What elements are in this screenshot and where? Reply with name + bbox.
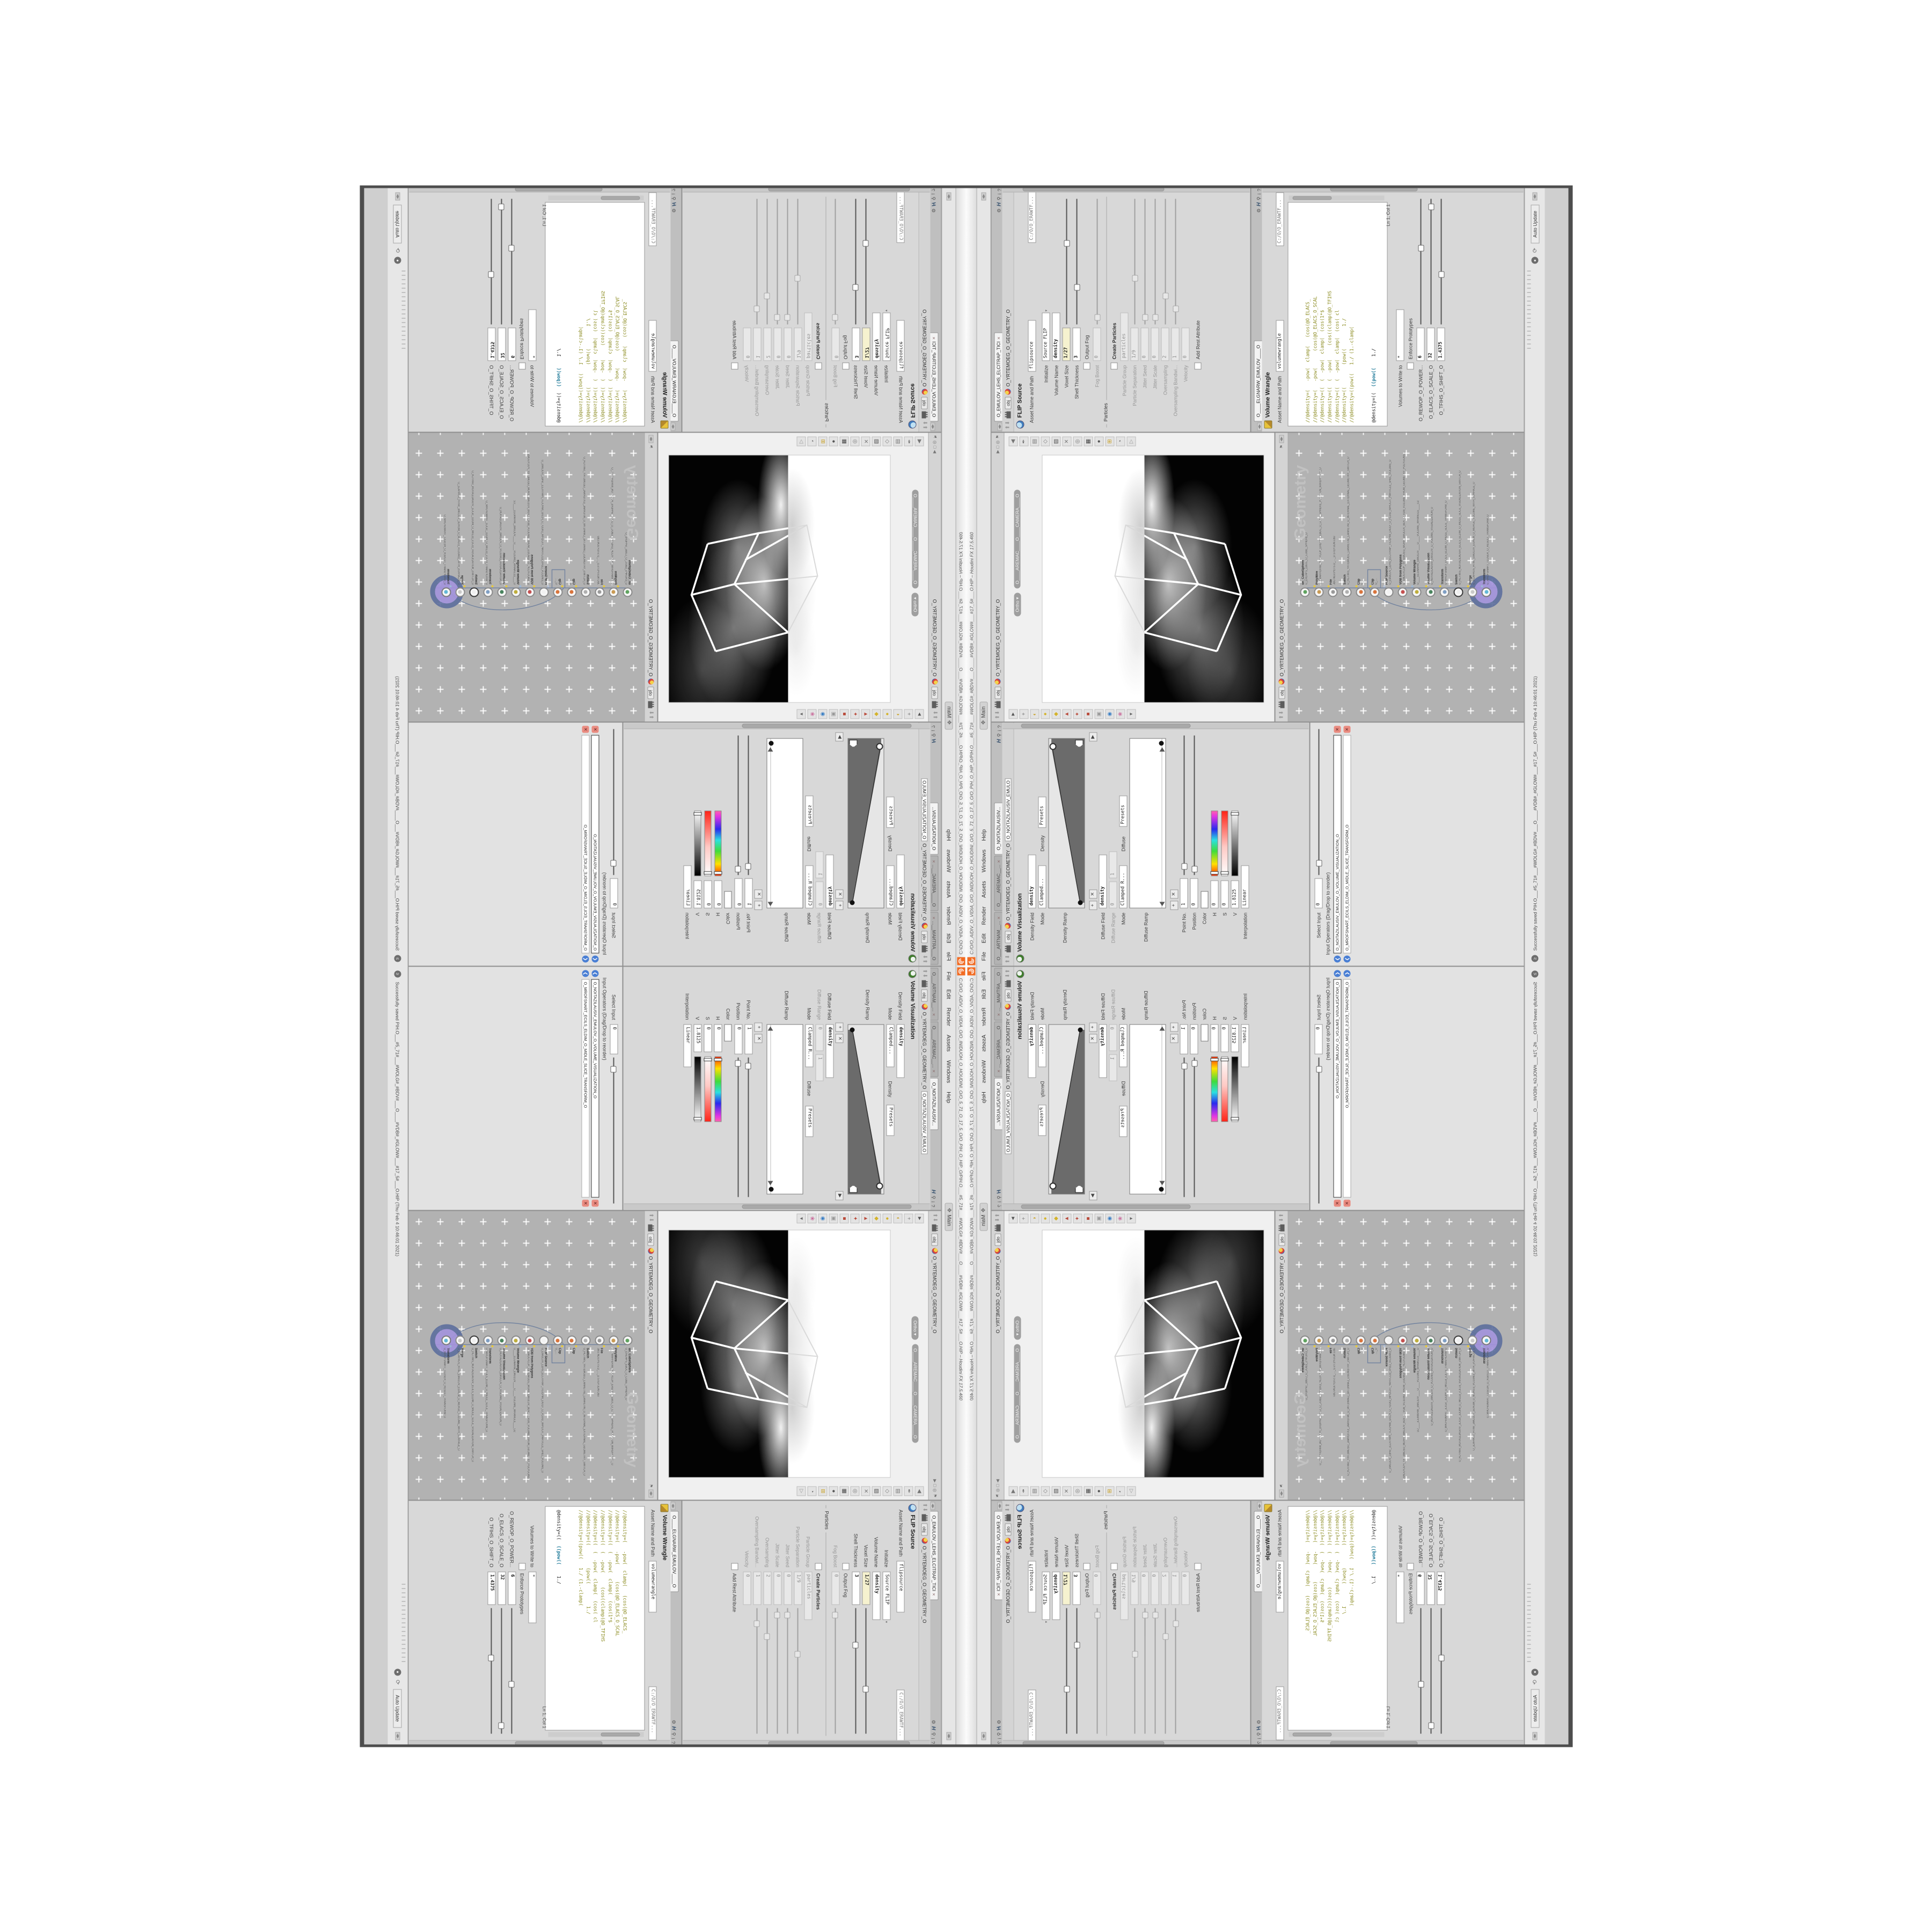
toolbar-icon[interactable]: + (904, 709, 913, 719)
particle-separation-field[interactable]: 1/9 (1130, 1571, 1138, 1605)
node-body-icon[interactable] (1481, 1335, 1491, 1345)
node-name-field[interactable]: O_NOITAZILAUSIV_EMULO (921, 1091, 928, 1154)
tab-close-icon[interactable]: ✕ (997, 1592, 1001, 1596)
slider-handle[interactable] (852, 1642, 858, 1648)
menu-render[interactable]: Render (946, 1007, 952, 1026)
particles-section-label[interactable]: Particles (824, 400, 829, 424)
jitter-scale-field[interactable]: 0 (773, 1571, 781, 1605)
slider-handle[interactable] (693, 1117, 701, 1120)
toolbar-icon[interactable]: ◆ (1051, 1213, 1060, 1223)
ramp-marker-icon[interactable] (767, 1181, 773, 1185)
nav-arrows-icon[interactable]: ⬆⬇ (1005, 954, 1011, 963)
network-node[interactable]: Clip O_… (1370, 1335, 1379, 1482)
network-node[interactable]: Clip O_… (567, 450, 576, 597)
particle-separation-slider[interactable] (794, 1608, 801, 1733)
node-body-icon[interactable] (567, 587, 576, 597)
node-name-field[interactable]: O_NOITAZILAUSIV_EMULO (1005, 1091, 1011, 1154)
vex-code-editor[interactable]: //@density=( -pow( clamp( (cos(@O_ELACS_… (545, 1506, 645, 1730)
node-body-icon[interactable] (539, 587, 548, 597)
target-icon[interactable]: ◎ (932, 1488, 937, 1492)
info-icon[interactable]: i (997, 193, 1002, 194)
slider-handle[interactable] (1142, 314, 1148, 320)
remove-input-icon[interactable]: ✕ (1334, 1199, 1341, 1206)
tab-volume-wrangle[interactable]: O____ELGNARW_EMULOV____O (670, 340, 678, 421)
node-body-icon[interactable] (497, 1335, 507, 1345)
toolbar-icon[interactable]: ◎ (1073, 436, 1082, 446)
remove-input-icon[interactable]: ✕ (582, 1199, 589, 1206)
node-body-icon[interactable] (1439, 1335, 1449, 1345)
input-operator-row[interactable]: ❮ O_MROFSNART_ECILS_ELDIM_O_MIDLE_SLICE_… (1342, 967, 1351, 1210)
remove-input-icon[interactable]: ✕ (592, 1199, 599, 1206)
houdini-h-icon[interactable]: H (670, 1726, 676, 1730)
node-name-field[interactable]: O_NOITAZILAUSIV_EMULO (921, 778, 928, 841)
message-log-icon[interactable]: ≥ (394, 970, 401, 977)
node-flag-icon[interactable] (617, 1345, 619, 1347)
slider-handle[interactable] (1210, 871, 1218, 874)
code-scrollbar[interactable] (1289, 1732, 1384, 1737)
toolbar-icon[interactable]: ▤ (1030, 1486, 1039, 1496)
volume-name-field[interactable]: density (1052, 1571, 1060, 1620)
tab-visualization[interactable]: O_NOITAZILAUSIV... (994, 1078, 1002, 1130)
node-body-icon[interactable] (1314, 1335, 1323, 1345)
jitter-seed-slider[interactable] (1141, 199, 1148, 324)
jitter-seed-slider[interactable] (784, 199, 791, 324)
ramp-delete-point-button[interactable]: ✕ (1170, 889, 1178, 898)
network-node[interactable]: Switch O_HCTIWS_NOITAZILAUSIV_ECILS_ELDI… (1453, 450, 1463, 597)
slider-handle[interactable] (1418, 245, 1424, 251)
network-node[interactable]: Transform O_MROFSNART_TLUSER_O_RESULT_TR… (1481, 1335, 1491, 1482)
ramp-add-point-button[interactable]: + (1170, 901, 1178, 910)
toolbar-icon[interactable]: ● (1094, 1486, 1103, 1496)
pane-split-arrows-icon[interactable]: ◀▶ (648, 435, 653, 443)
nav-arrows-icon[interactable]: ⬆⬇ (648, 710, 654, 719)
help-icon[interactable]: ? (1256, 188, 1262, 191)
network-node[interactable]: File JBO.ND3.PETS.D_…_D.STEP.3DN.OBJ (595, 450, 604, 597)
network-node[interactable]: Clip O_… (1370, 450, 1379, 597)
houdini-h-icon[interactable]: H (930, 202, 936, 206)
network-node[interactable]: Switch O_HCTIWS_YRTEMOEG_LANRETXE_LANRET… (581, 1335, 590, 1482)
node-flag-icon[interactable] (1383, 585, 1385, 587)
point-no-value[interactable]: 1 (744, 878, 752, 908)
asset-name-field[interactable]: volumewrangle (649, 1561, 657, 1612)
jump-to-node-icon[interactable]: ❮ (582, 970, 589, 977)
shell-thickness-slider[interactable] (1073, 199, 1080, 324)
slider-handle[interactable] (1181, 1063, 1187, 1069)
network-node[interactable]: Transform O_MROFSNART_ECILS_ELDIM_O_MIDL… (1439, 450, 1449, 597)
particle-separation-field[interactable]: 1/9 (794, 327, 802, 361)
ramp-add-point-button[interactable]: + (836, 901, 844, 910)
help-icon[interactable]: ? (931, 725, 936, 728)
ramp-point-handle[interactable] (1078, 1027, 1082, 1032)
menu-help[interactable]: Help (946, 1092, 952, 1103)
node-flag-icon[interactable] (1369, 1345, 1371, 1347)
toolbar-icon[interactable]: ▷ (796, 1486, 806, 1496)
pin-icon[interactable]: ⚑ (1279, 444, 1284, 448)
node-body-icon[interactable] (1411, 587, 1421, 597)
view-mode-pill[interactable]: Ortho ▾ (1014, 592, 1021, 616)
ramp-add-point-button[interactable]: + (836, 1022, 844, 1031)
slider-handle[interactable] (1074, 284, 1080, 290)
add-rest-checkbox[interactable] (1194, 1563, 1201, 1570)
network-path[interactable]: O_YRTEMOEG_O_GEOMETRY_O (648, 1256, 654, 1333)
volumes-to-write-field[interactable]: * (528, 1571, 536, 1623)
scene-path[interactable]: O_YRTEMOEG_O_GEOMETRY_O (932, 599, 938, 676)
view-mode-pill[interactable]: Ortho ▾ (911, 1316, 918, 1340)
presets2-dropdown[interactable]: Presets (805, 1106, 813, 1137)
message-log-icon[interactable]: ≥ (1531, 955, 1538, 962)
diffuse-mode-dropdown[interactable]: Clamped R... (805, 865, 813, 908)
slider-handle[interactable] (832, 314, 838, 320)
pane-split-arrows-icon[interactable]: ◀▶ (946, 192, 951, 200)
cook-mode-icon[interactable]: ● (394, 1668, 401, 1675)
node-flag-icon[interactable] (505, 1345, 507, 1347)
camera-pill[interactable]: O____AREMAC____O____CAMERA____O (1014, 1344, 1020, 1443)
network-node[interactable]: VDB from Polygons O_SNOGYLOP_YRTEMOEG_MO… (1397, 450, 1407, 597)
slider-handle[interactable] (498, 203, 504, 210)
ramp-marker-icon[interactable] (1159, 1026, 1165, 1030)
network-node[interactable]: Clip O_… (1356, 1335, 1365, 1482)
timeline-ticks[interactable] (401, 268, 405, 349)
toolbar-icon[interactable]: ◀ (914, 436, 924, 446)
node-flag-icon[interactable] (1355, 585, 1357, 587)
toolbar-icon[interactable]: ▣ (1094, 1213, 1103, 1223)
network-node[interactable]: Merge O_ECAFRUS_HTIW_EMULOV_EGREM_O_MERG… (455, 450, 465, 597)
toolbar-icon[interactable]: ▷ (1126, 436, 1136, 446)
slider-handle[interactable] (1074, 1642, 1080, 1648)
input-operator-row[interactable]: ❮ O_NOITAZILAUSIV_EMULOV_O_VOLUME_VISUAL… (1332, 967, 1342, 1210)
search-icon[interactable]: ⚲ (930, 733, 936, 737)
ramp-point-handle[interactable] (876, 743, 883, 750)
node-body-icon[interactable] (1439, 587, 1449, 597)
velocity-field[interactable]: 0 (743, 1571, 751, 1605)
volumes-to-write-field[interactable]: * (1396, 309, 1404, 361)
toolbar-icon[interactable]: ⊞ (818, 436, 827, 446)
nav-arrows-icon[interactable]: ⬆⬇ (648, 1213, 654, 1222)
particle-group-field[interactable]: particles (804, 312, 812, 361)
node-path[interactable]: O_YRTEMOEG_O_GEOMETRY_O (922, 1012, 927, 1089)
node-flag-icon[interactable] (1327, 585, 1329, 587)
power-param-field[interactable]: 6 (508, 327, 516, 361)
asset-path-field[interactable]: C:/O/O_ERAWTF... (897, 189, 905, 243)
power-param-slider[interactable] (1417, 1608, 1424, 1733)
power-param-field[interactable]: 6 (1416, 327, 1424, 361)
diffuse-ramp-widget[interactable] (1129, 1024, 1166, 1194)
tab-camera[interactable]: O____AREMAC__...✕ (994, 855, 1002, 911)
camera-pill[interactable]: O____AREMAC____O____CAMERA____O (1014, 489, 1020, 588)
value-value[interactable]: 1.8125 (693, 1024, 701, 1052)
input-operator-2[interactable]: O_MROFSNART_ECILS_ELDIM_O_MIDLE_SLICE_TR… (582, 979, 590, 1197)
network-node[interactable]: Switch O_HCTIWS_YRTEMOEG_LANRETXE_LANRET… (581, 450, 590, 597)
slider-handle[interactable] (832, 1612, 838, 1618)
output-fog-checkbox[interactable] (1083, 362, 1090, 369)
remove-input-icon[interactable]: ✕ (1343, 1199, 1350, 1206)
node-path[interactable]: O_YRTEMOEG_O_GEOMETRY_O (1005, 309, 1011, 386)
pane-split-arrows-icon[interactable]: ◀▶ (946, 1732, 951, 1740)
toolbar-icon[interactable]: ❀ (1116, 709, 1125, 719)
asset-name-field[interactable]: flipsource (1028, 1561, 1036, 1612)
ramp-expand-button[interactable]: ▶ (1089, 732, 1097, 741)
tab-scroll-arrows-icon[interactable]: ◀▶ (670, 1502, 675, 1510)
node-body-icon[interactable] (1314, 587, 1323, 597)
timeline-ticks[interactable] (1527, 268, 1531, 349)
toolbar-icon[interactable]: ⊞ (1105, 1486, 1114, 1496)
scrollbar[interactable] (624, 723, 930, 729)
diffuse-field-value[interactable]: density (1099, 1024, 1107, 1078)
node-flag-icon[interactable] (1341, 585, 1343, 587)
houdini-h-icon[interactable]: H (996, 202, 1002, 206)
search-icon[interactable]: ⚲ (1256, 1732, 1262, 1736)
node-body-icon[interactable] (623, 1335, 632, 1345)
network-node[interactable]: Transform O_MROFSNART_ECILS_ELDIM_O_MIDL… (483, 450, 493, 597)
input-operator-2[interactable]: O_MROFSNART_ECILS_ELDIM_O_MIDLE_SLICE_TR… (1343, 735, 1351, 953)
value-value[interactable]: 1.8125 (693, 880, 701, 908)
saturation-slider[interactable] (1221, 810, 1228, 876)
interpolation-dropdown[interactable]: Linear (1241, 865, 1249, 908)
update-mode-arrows-icon[interactable]: ◀▶ (395, 192, 400, 200)
node-flag-icon[interactable] (1397, 585, 1399, 587)
slider-handle[interactable] (508, 1681, 514, 1687)
menu-edit[interactable]: Edit (946, 989, 952, 999)
houdini-h-icon[interactable]: H (996, 1189, 1002, 1193)
slider-handle[interactable] (610, 1066, 616, 1072)
toolbar-icon[interactable]: ◔ (807, 1486, 816, 1496)
toolbar-icon[interactable]: ▣ (829, 709, 838, 719)
window-titlebar[interactable]: C:/O/O_AIDIV_O_VIDIA_O/O_INIDUOH_O_HOUDI… (955, 966, 966, 1744)
tab-scroll-arrows-icon[interactable]: ◀▶ (997, 422, 1002, 430)
pin-icon[interactable]: ⚑ (648, 444, 653, 448)
toolbar-icon[interactable]: ❀ (807, 1213, 816, 1223)
toolbar-icon[interactable]: ✒ (1019, 436, 1028, 446)
node-body-icon[interactable] (525, 587, 535, 597)
network-node[interactable]: un_CubeSphere O_EREHPS_EBUC_O_CUBE_SPHER… (623, 450, 632, 597)
asset-path-field[interactable]: C:/O/O_ERAWTF... (897, 1689, 905, 1743)
node-flag-icon[interactable] (589, 1345, 591, 1347)
hue-slider[interactable] (714, 1056, 721, 1122)
ramp-add-point-button[interactable]: + (1089, 1022, 1097, 1031)
toolbar-icon[interactable]: ✦ (850, 709, 859, 719)
context-chip[interactable]: obj (932, 686, 938, 699)
play-button-icon[interactable]: ▶ (995, 450, 1000, 453)
value-value[interactable]: 1.8125 (1231, 1024, 1239, 1052)
camera-pill[interactable]: O____AREMAC____O____CAMERA____O (912, 489, 918, 588)
node-flag-icon[interactable] (1481, 1345, 1483, 1347)
vex-code-editor[interactable]: //@density=( -pow( clamp( (cos(@O_ELACS_… (1287, 202, 1387, 426)
diffuse-range-min[interactable]: 0 (1109, 881, 1117, 908)
diffuse-mode-dropdown[interactable]: Clamped R... (1119, 865, 1127, 908)
scrollbar-thumb[interactable] (768, 1741, 910, 1745)
network-node[interactable]: Switch O_HCTIWS_NOITAZILAUSIV_ECILS_ELDI… (469, 1335, 479, 1482)
diffuse-field-value[interactable]: density (825, 1024, 833, 1078)
network-node[interactable]: PolyWire O_EMARFERIW_NOGYLOP_EREHPS_EBUC… (1314, 1335, 1323, 1482)
toolbar-icon[interactable]: ◆ (1051, 709, 1060, 719)
toolbar-icon[interactable]: ► (914, 709, 924, 719)
hue-value[interactable]: 0 (1210, 880, 1218, 908)
fog-boost-slider[interactable] (832, 1608, 839, 1733)
desktop-selector[interactable]: ✥ Main (979, 1203, 987, 1231)
help-icon[interactable]: ? (997, 725, 1002, 728)
fog-boost-slider[interactable] (1093, 1608, 1100, 1733)
shift-param-slider[interactable] (488, 1608, 495, 1733)
nav-arrows-icon[interactable]: ⬆⬇ (1005, 969, 1011, 978)
diffuse-range-max[interactable]: 1 (815, 851, 823, 878)
diffuse-mode-dropdown[interactable]: Clamped R... (805, 1024, 813, 1067)
vex-code-editor[interactable]: //@density=( -pow( clamp( (cos(@O_ELACS_… (1287, 1506, 1387, 1730)
point-no-value[interactable]: 1 (1180, 1024, 1188, 1054)
cook-mode-icon[interactable]: ● (394, 257, 401, 264)
slider-handle[interactable] (714, 871, 722, 874)
network-path[interactable]: O_YRTEMOEG_O_GEOMETRY_O (1279, 1256, 1284, 1333)
render-region[interactable] (1042, 455, 1264, 702)
menu-file[interactable]: File (946, 971, 952, 980)
tab-camera[interactable]: O____AREMAC__...✕ (994, 1021, 1002, 1077)
network-node[interactable]: Transform O_MROFSNART_TLUSER_O_RESULT_TR… (441, 450, 451, 597)
node-body-icon[interactable] (441, 587, 451, 597)
node-flag-icon[interactable] (463, 1345, 465, 1347)
slider-handle[interactable] (1173, 1620, 1179, 1627)
nav-arrows-icon[interactable]: ⬆⬇ (921, 420, 927, 429)
slider-handle[interactable] (488, 271, 494, 277)
toolbar-icon[interactable]: ❀ (807, 709, 816, 719)
node-body-icon[interactable] (609, 587, 618, 597)
tab-scroll-arrows-icon[interactable]: ◀▶ (1257, 1502, 1262, 1510)
input-operator-row[interactable]: ❮ O_NOITAZILAUSIV_EMULOV_O_VOLUME_VISUAL… (590, 967, 600, 1210)
diffuse-field-value[interactable]: density (825, 854, 833, 908)
ramp-point-handle[interactable] (1159, 741, 1163, 745)
shift-param-field[interactable]: 1.4375 (1437, 1571, 1445, 1605)
node-body-icon[interactable] (553, 1335, 562, 1345)
tab-volume-wrangle[interactable]: O____ELGNARW_EMULOV____O (1254, 340, 1262, 421)
tab-close-icon[interactable]: ✕ (997, 1013, 1001, 1016)
volume-name-field[interactable]: density (872, 312, 880, 361)
scrollbar-thumb[interactable] (742, 723, 911, 728)
menu-edit[interactable]: Edit (946, 933, 952, 943)
ramp-delete-point-button[interactable]: ✕ (755, 889, 763, 898)
node-flag-icon[interactable] (1439, 585, 1441, 587)
toolbar-icon[interactable]: ◉ (1105, 709, 1114, 719)
toolbar-icon[interactable]: ► (914, 1213, 924, 1223)
menu-windows[interactable]: Windows (946, 849, 952, 872)
node-body-icon[interactable] (1467, 1335, 1477, 1345)
help-icon[interactable]: ? (997, 1204, 1002, 1207)
toolbar-icon[interactable]: ◀ (914, 1486, 924, 1496)
oversampling-slider[interactable] (1161, 199, 1168, 324)
toolbar-icon[interactable]: ◀ (1008, 436, 1018, 446)
desktop-selector[interactable]: ✥ Main (945, 1203, 953, 1231)
density-ramp-widget[interactable] (847, 1024, 884, 1194)
slider-handle[interactable] (1064, 240, 1070, 246)
context-chip[interactable]: obj (921, 397, 928, 409)
recook-icon[interactable]: ⟳ (1531, 1680, 1538, 1685)
auto-update-button[interactable]: Auto Update (1531, 204, 1539, 243)
network-node[interactable]: VDB from Polygons O_SNOGYLOP_YRTEMOEG_MO… (525, 1335, 535, 1482)
tab-volume-wrangle[interactable]: O____ELGNARW_EMULOV____O (670, 1511, 678, 1592)
node-flag-icon[interactable] (1467, 1345, 1469, 1347)
gear-icon[interactable]: ⚙ (670, 1719, 676, 1724)
ramp-expand-button[interactable]: ▶ (1089, 1191, 1097, 1200)
node-flag-icon[interactable] (575, 585, 577, 587)
toolbar-icon[interactable]: ✦ (1073, 1213, 1082, 1223)
toolbar-icon[interactable]: ▦ (1084, 1486, 1093, 1496)
scene-path[interactable]: O_YRTEMOEG_O_GEOMETRY_O (995, 599, 1000, 676)
network-node[interactable]: un_CubeSphere O_EREHPS_EBUC_O_CUBE_SPHER… (1300, 1335, 1309, 1482)
node-flag-icon[interactable] (449, 585, 451, 587)
toolbar-icon[interactable]: ► (1008, 709, 1018, 719)
slider-handle[interactable] (1316, 860, 1322, 866)
slider-handle[interactable] (794, 1651, 800, 1657)
target-icon[interactable]: ◎ (932, 440, 937, 444)
toolbar-icon[interactable]: ● (1041, 1213, 1050, 1223)
houdini-h-icon[interactable]: H (996, 1726, 1002, 1730)
diffuse-range-max[interactable]: 1 (815, 1054, 823, 1081)
menu-assets[interactable]: Assets (980, 881, 987, 898)
ramp-point-handle[interactable] (1159, 1187, 1163, 1191)
add-rest-checkbox[interactable] (731, 362, 738, 369)
target-icon[interactable]: ◎ (995, 440, 1000, 444)
tab-close-icon[interactable]: ✕ (931, 336, 935, 340)
cook-mode-icon[interactable]: ● (1531, 1668, 1538, 1675)
hue-value[interactable]: 0 (1210, 1024, 1218, 1052)
node-body-icon[interactable] (1397, 587, 1407, 597)
toolbar-icon[interactable]: + (1019, 709, 1028, 719)
node-path[interactable]: O_YRTEMOEG_O_GEOMETRY_O (922, 309, 927, 386)
tab-flip-source[interactable]: O_EMULOV_LEHS_ELCITRAP_TICI✕ (994, 332, 1002, 421)
nav-arrows-icon[interactable]: ⬆⬇ (921, 954, 927, 963)
nav-arrows-icon[interactable]: ⬆⬇ (994, 1213, 1000, 1222)
node-body-icon[interactable] (1342, 1335, 1351, 1345)
scrollbar[interactable] (409, 186, 670, 192)
network-node[interactable]: Transform O_MROFSNART_ECILS_ELDIM_O_MIDL… (483, 1335, 493, 1482)
node-body-icon[interactable] (1467, 587, 1477, 597)
play-button-icon[interactable]: ▶ (995, 1479, 1000, 1482)
jitter-seed-field[interactable]: 0 (784, 327, 792, 361)
menu-assets[interactable]: Assets (946, 881, 952, 898)
toolbar-icon[interactable]: ▾ (1126, 709, 1136, 719)
asset-name-field[interactable]: flipsource (897, 320, 905, 371)
slider-handle[interactable] (1438, 1655, 1444, 1661)
node-flag-icon[interactable] (463, 585, 465, 587)
code-scrollbar[interactable] (548, 1732, 643, 1737)
particle-separation-field[interactable]: 1/9 (794, 1571, 802, 1605)
toolbar-icon[interactable]: ▲ (861, 709, 870, 719)
network-node[interactable]: Clip O_… (553, 1335, 562, 1482)
create-particles-checkbox[interactable] (815, 1563, 822, 1570)
toolbar-icon[interactable]: + (904, 1213, 913, 1223)
oversampling-field[interactable]: 2 (1161, 327, 1169, 361)
create-particles-checkbox[interactable] (1110, 362, 1117, 369)
node-body-icon[interactable] (1453, 1335, 1463, 1345)
node-flag-icon[interactable] (1313, 585, 1315, 587)
add-rest-checkbox[interactable] (1194, 362, 1201, 369)
network-node[interactable]: Switch O_HCTIWS_NOITAZILAUSIV_ECILS_ELDI… (469, 450, 479, 597)
slider-handle[interactable] (1316, 1066, 1322, 1072)
toolbar-icon[interactable]: ● (1094, 436, 1103, 446)
remove-input-icon[interactable]: ✕ (582, 726, 589, 733)
node-body-icon[interactable] (1397, 1335, 1407, 1345)
network-node[interactable]: Switch O_HCTIWS_YRTEMOEG_LANRETXE_LANRET… (1342, 1335, 1351, 1482)
toolbar-icon[interactable]: ◆ (872, 709, 881, 719)
info-icon[interactable]: i (931, 1201, 936, 1202)
ramp-marker-icon[interactable] (1159, 1181, 1165, 1185)
ramp-expand-button[interactable]: ▶ (836, 732, 844, 741)
node-flag-icon[interactable] (1411, 585, 1413, 587)
update-mode-arrows-icon[interactable]: ◀▶ (1532, 192, 1537, 200)
info-icon[interactable]: i (997, 1738, 1002, 1739)
update-mode-arrows-icon[interactable]: ◀▶ (1532, 1732, 1537, 1740)
density-ramp-widget[interactable] (1048, 738, 1085, 908)
toolbar-icon[interactable]: ▾ (796, 1213, 806, 1223)
jitter-scale-field[interactable]: 0 (1151, 327, 1159, 361)
menu-help[interactable]: Help (946, 829, 952, 841)
